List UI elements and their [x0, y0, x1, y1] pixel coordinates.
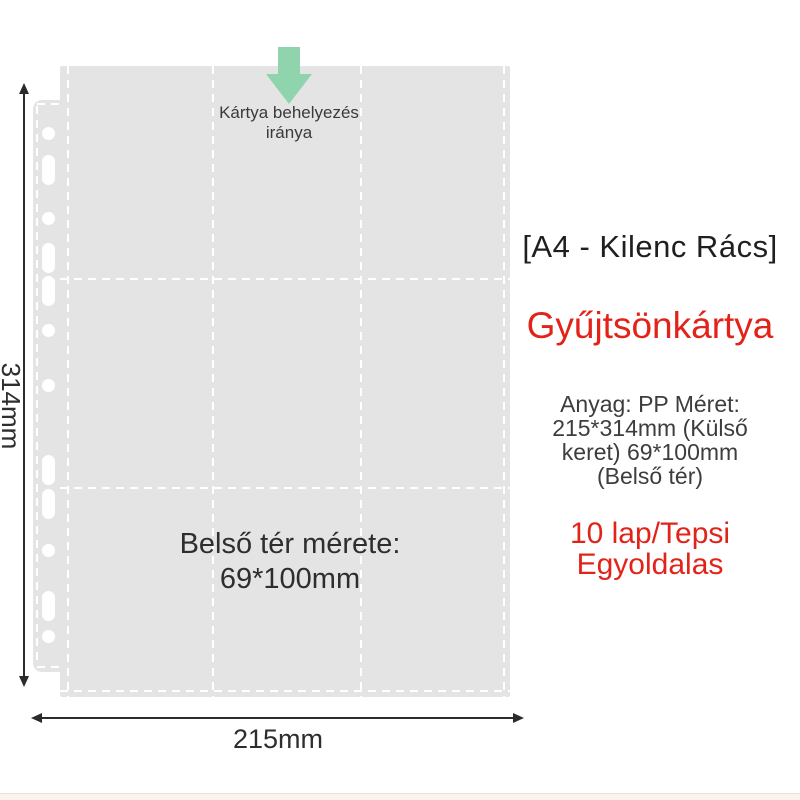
- punch-hole-oval: [42, 591, 55, 621]
- sleeve-page: [60, 66, 510, 697]
- down-arrow-icon: [266, 47, 312, 104]
- strip-left-seam-line: [36, 106, 38, 666]
- grid-line-horizontal: [60, 690, 510, 692]
- punch-hole-circle: [42, 379, 55, 392]
- punch-hole-circle: [42, 324, 55, 337]
- grid-line-horizontal: [60, 278, 510, 280]
- punch-hole-circle: [42, 630, 55, 643]
- pocket-size-line1: Belső tér mérete:: [110, 527, 470, 562]
- specs-line2: 215*314mm (Külső: [518, 416, 782, 440]
- grid-line-vertical: [67, 66, 69, 697]
- strip-bottom-seam-line: [37, 666, 61, 668]
- product-highlight: 10 lap/Tepsi Egyoldalas: [518, 518, 782, 580]
- punch-hole-circle: [42, 212, 55, 225]
- height-dimension-label: 314mm: [0, 357, 26, 455]
- info-panel: [A4 - Kilenc Rács] Gyűjtsönkártya Anyag:…: [518, 230, 782, 580]
- punch-hole-oval: [42, 276, 55, 306]
- arrow-up-icon: [19, 83, 29, 94]
- arrow-left-icon: [31, 713, 42, 723]
- pocket-size-label: Belső tér mérete: 69*100mm: [110, 527, 470, 597]
- arrow-down-icon: [19, 676, 29, 687]
- insertion-direction-caption: Kártya behelyezés iránya: [189, 103, 389, 143]
- punch-hole-oval: [42, 455, 55, 485]
- bottom-edge-band: [0, 793, 800, 800]
- specs-line4: (Belső tér): [518, 464, 782, 488]
- highlight-line1: 10 lap/Tepsi: [518, 518, 782, 549]
- product-name: Gyűjtsönkártya: [518, 304, 782, 348]
- punch-hole-oval: [42, 243, 55, 273]
- specs-line1: Anyag: PP Méret:: [518, 392, 782, 416]
- width-dimension-line: [40, 717, 515, 719]
- product-image: Kártya behelyezés iránya Belső tér méret…: [0, 0, 800, 800]
- grid-line-vertical: [212, 66, 214, 697]
- specs-line3: keret) 69*100mm: [518, 440, 782, 464]
- insertion-caption-line1: Kártya behelyezés: [189, 103, 389, 123]
- product-heading: [A4 - Kilenc Rács]: [518, 230, 782, 264]
- punch-hole-circle: [42, 544, 55, 557]
- punch-hole-oval: [42, 489, 55, 519]
- punch-hole-oval: [42, 155, 55, 185]
- arrow-right-icon: [513, 713, 524, 723]
- grid-line-horizontal: [60, 487, 510, 489]
- insertion-caption-line2: iránya: [189, 123, 389, 143]
- width-dimension-label: 215mm: [178, 724, 378, 755]
- pocket-size-line2: 69*100mm: [110, 562, 470, 597]
- product-specs: Anyag: PP Méret: 215*314mm (Külső keret)…: [518, 392, 782, 488]
- strip-top-seam-line: [37, 103, 61, 105]
- grid-line-vertical: [503, 66, 505, 697]
- highlight-line2: Egyoldalas: [518, 549, 782, 580]
- grid-line-vertical: [360, 66, 362, 697]
- punch-hole-circle: [42, 127, 55, 140]
